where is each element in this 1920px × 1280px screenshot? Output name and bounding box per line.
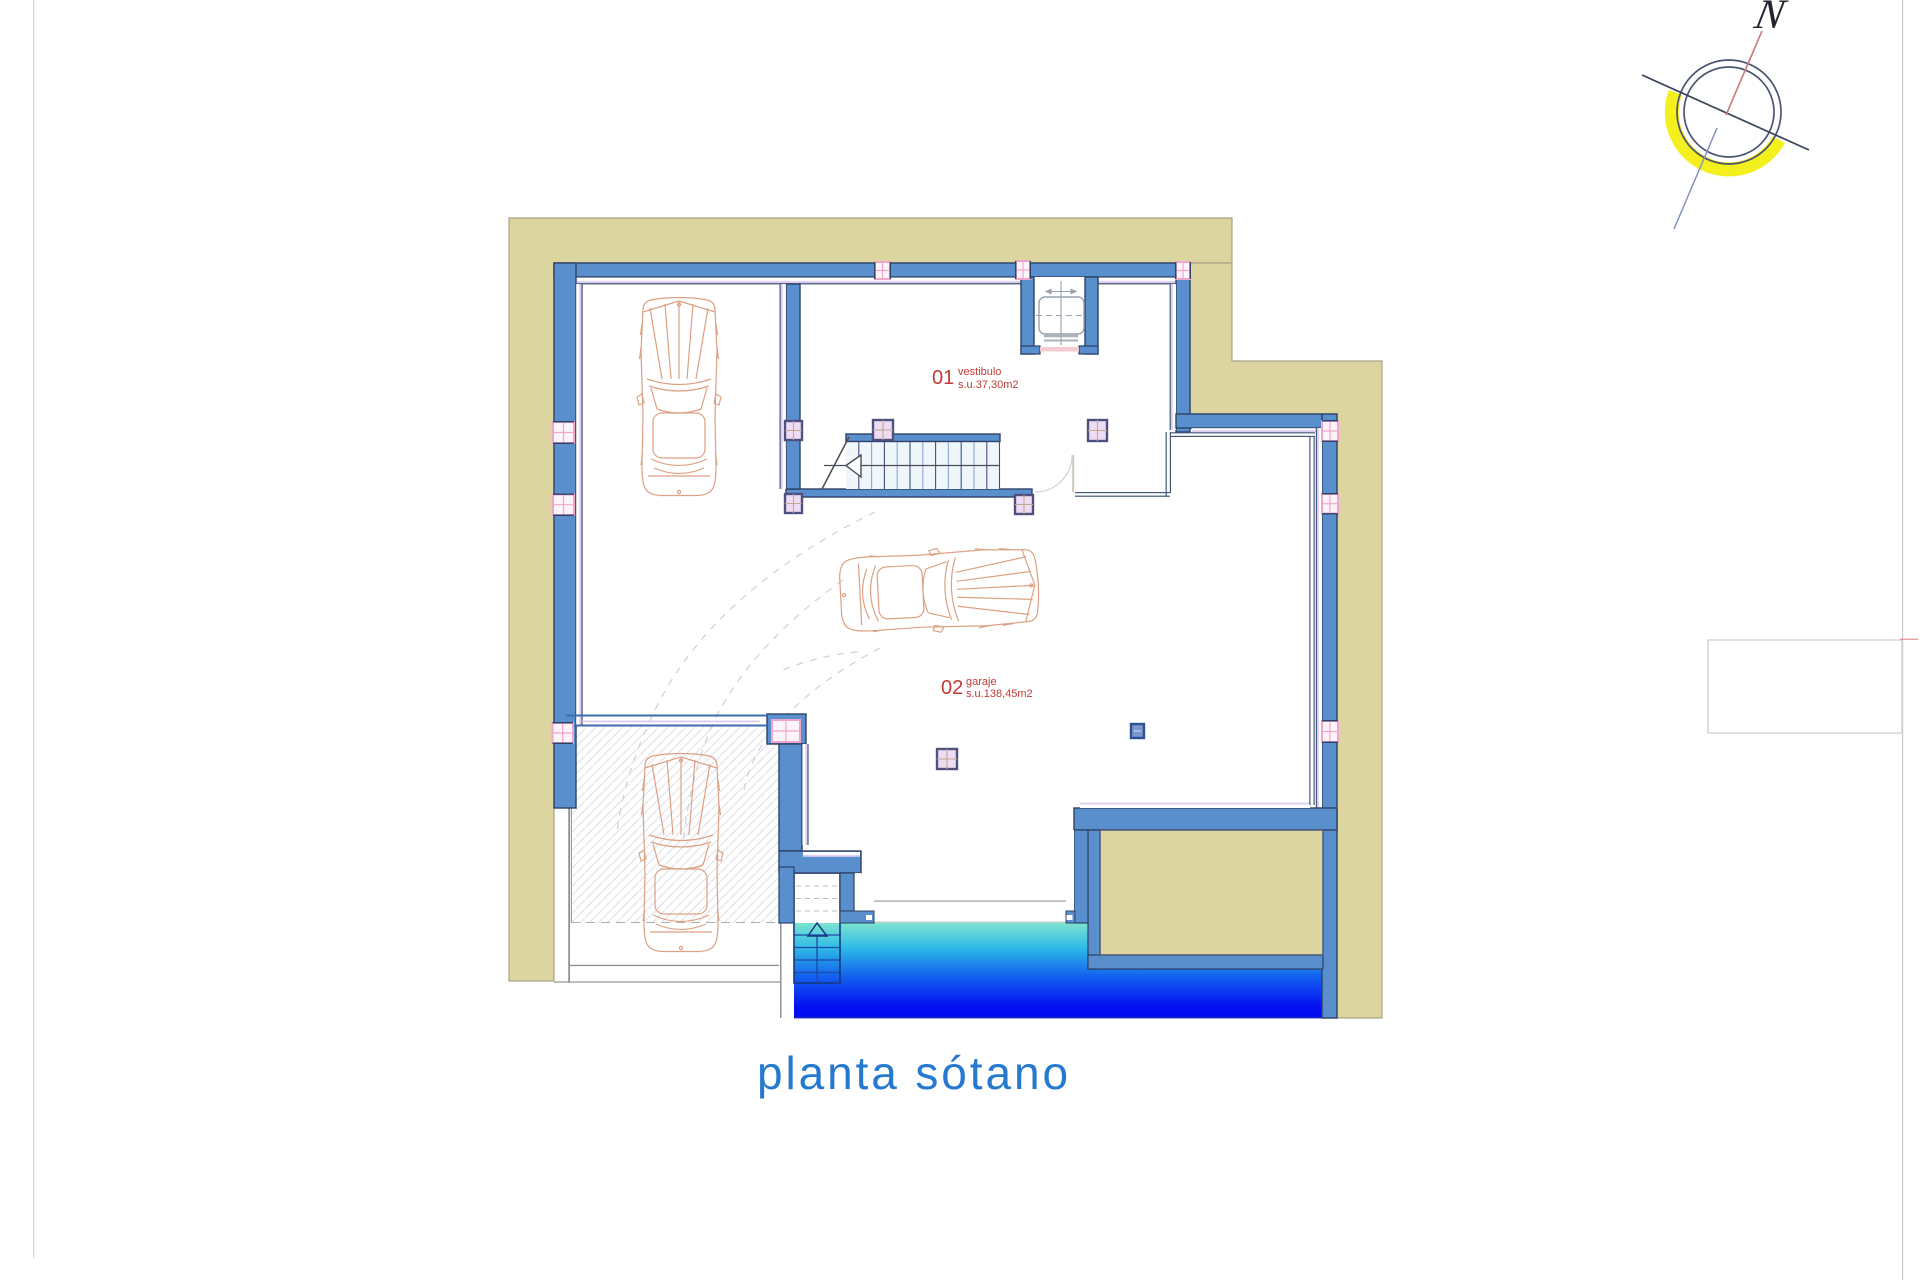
svg-text:garaje: garaje (966, 676, 997, 688)
svg-text:01: 01 (932, 367, 954, 389)
svg-text:02: 02 (941, 677, 963, 699)
svg-text:planta sótano: planta sótano (757, 1047, 1071, 1099)
svg-text:vestibulo: vestibulo (958, 366, 1001, 378)
svg-text:s.u.37,30m2: s.u.37,30m2 (958, 379, 1019, 391)
svg-text:N: N (1750, 0, 1792, 38)
svg-text:s.u.138,45m2: s.u.138,45m2 (966, 688, 1033, 700)
